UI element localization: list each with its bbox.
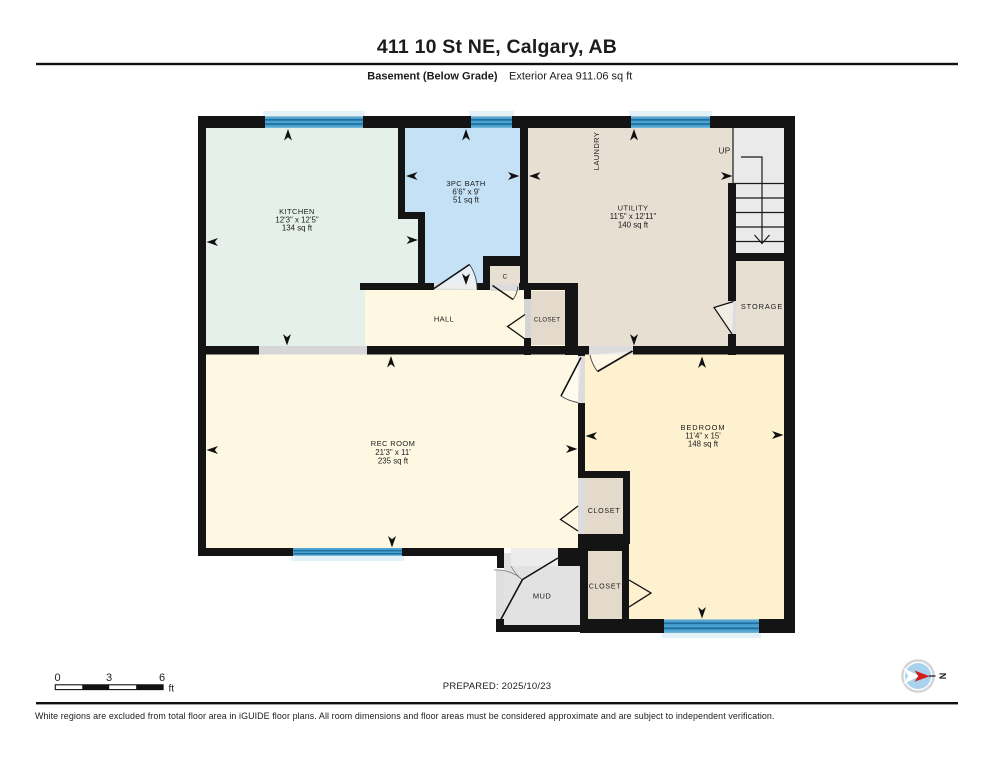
svg-text:LAUNDRY: LAUNDRY [592, 132, 601, 171]
svg-text:3: 3 [106, 672, 112, 684]
svg-text:411 10 St NE, Calgary, AB: 411 10 St NE, Calgary, AB [377, 36, 617, 58]
svg-text:134 sq ft: 134 sq ft [282, 224, 313, 233]
svg-text:C: C [503, 274, 508, 281]
svg-text:CLOSET: CLOSET [588, 507, 621, 515]
svg-text:PREPARED: 2025/10/23: PREPARED: 2025/10/23 [443, 681, 551, 692]
svg-text:CLOSET: CLOSET [589, 583, 622, 591]
svg-text:148 sq ft: 148 sq ft [688, 440, 719, 449]
svg-text:N: N [937, 673, 947, 680]
svg-text:STORAGE: STORAGE [741, 302, 783, 311]
svg-text:Basement (Below Grade): Basement (Below Grade) [367, 71, 498, 83]
svg-text:235 sq ft: 235 sq ft [378, 457, 409, 466]
svg-text:White regions are excluded fro: White regions are excluded from total fl… [35, 711, 775, 721]
svg-text:ft: ft [169, 684, 175, 695]
svg-text:UP: UP [719, 147, 731, 156]
svg-text:HALL: HALL [434, 315, 454, 324]
svg-text:6: 6 [159, 672, 165, 684]
svg-text:0: 0 [54, 672, 60, 684]
svg-text:CLOSET: CLOSET [534, 317, 561, 324]
svg-text:Exterior Area 911.06 sq ft: Exterior Area 911.06 sq ft [509, 71, 632, 83]
svg-text:MUD: MUD [533, 592, 551, 601]
svg-text:REC ROOM: REC ROOM [371, 439, 415, 448]
svg-text:140 sq ft: 140 sq ft [618, 221, 649, 230]
svg-text:51 sq ft: 51 sq ft [453, 196, 480, 205]
